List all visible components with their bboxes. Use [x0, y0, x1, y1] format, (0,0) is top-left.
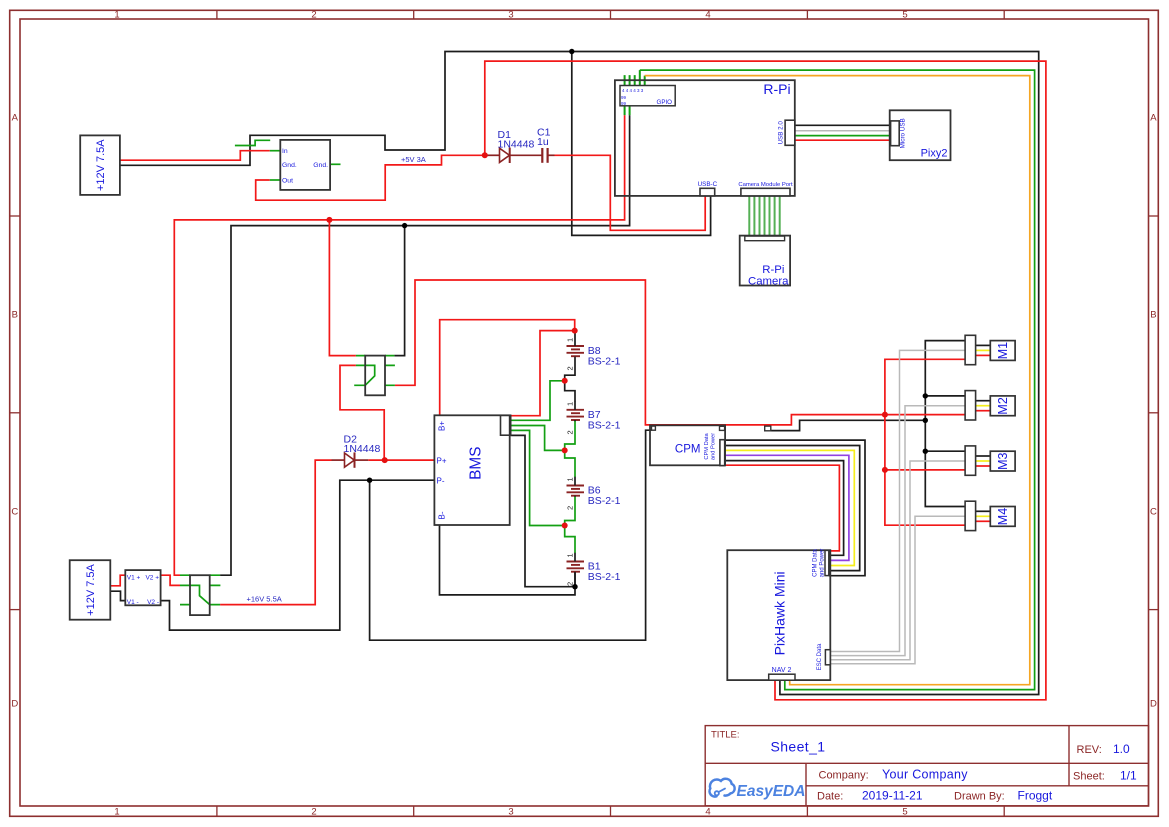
svg-text:2: 2 — [566, 430, 575, 434]
svg-text:1/1: 1/1 — [1120, 769, 1137, 783]
svg-text:2: 2 — [311, 10, 316, 21]
svg-text:Your Company: Your Company — [882, 767, 968, 781]
svg-text:and Power: and Power — [820, 549, 826, 578]
svg-text:1: 1 — [566, 553, 575, 557]
svg-text:1: 1 — [566, 338, 575, 342]
svg-text:REV:: REV: — [1077, 744, 1102, 756]
svg-text:1: 1 — [114, 10, 119, 21]
svg-text:PixHawk Mini: PixHawk Mini — [772, 571, 788, 655]
svg-text:Micro USB: Micro USB — [900, 118, 907, 148]
svg-text:BS-2-1: BS-2-1 — [588, 571, 621, 583]
svg-text:+12V 7.5A: +12V 7.5A — [85, 564, 97, 616]
svg-text:BMS: BMS — [468, 447, 485, 480]
svg-text:1N4448: 1N4448 — [344, 443, 381, 455]
svg-text:4: 4 — [705, 807, 710, 818]
svg-text:2019-11-21: 2019-11-21 — [862, 789, 923, 803]
svg-text:D: D — [11, 699, 18, 710]
svg-text:Company:: Company: — [819, 769, 869, 781]
svg-text:C: C — [1150, 507, 1157, 518]
svg-text:V2 +: V2 + — [145, 574, 159, 581]
svg-text:B: B — [1150, 310, 1156, 321]
svg-text:1.0: 1.0 — [1113, 742, 1130, 756]
svg-text:CPM Data: CPM Data — [813, 549, 819, 577]
svg-text:CPM Data: CPM Data — [704, 433, 710, 460]
svg-text:C: C — [11, 507, 18, 518]
svg-text:2: 2 — [311, 807, 316, 818]
svg-text:TITLE:: TITLE: — [711, 730, 740, 741]
svg-text:Gnd.: Gnd. — [313, 162, 328, 169]
svg-text:and Power: and Power — [711, 433, 717, 460]
svg-text:GPIO: GPIO — [657, 99, 673, 106]
svg-text:3: 3 — [508, 10, 513, 21]
svg-text:Drawn By:: Drawn By: — [954, 791, 1005, 803]
svg-text:2: 2 — [566, 506, 575, 510]
svg-text:B+: B+ — [437, 421, 446, 431]
svg-text:M2: M2 — [996, 397, 1010, 414]
svg-text:In: In — [282, 148, 288, 155]
svg-text:1: 1 — [566, 402, 575, 406]
svg-text:Sheet_1: Sheet_1 — [771, 739, 826, 755]
svg-text:BS-2-1: BS-2-1 — [588, 419, 621, 431]
svg-text:R-Pi: R-Pi — [762, 264, 784, 276]
svg-text:4 4 4 4 3 3: 4 4 4 4 3 3 — [622, 88, 644, 93]
svg-text:USB-C: USB-C — [698, 181, 718, 188]
svg-text:V1 +: V1 + — [127, 574, 141, 581]
svg-text:Pixy2: Pixy2 — [921, 148, 948, 160]
svg-text:5: 5 — [902, 807, 907, 818]
svg-text:Out: Out — [282, 178, 293, 185]
svg-text:B: B — [12, 310, 18, 321]
svg-text:Froggt: Froggt — [1018, 789, 1053, 803]
svg-text:4: 4 — [705, 10, 710, 21]
svg-text:Camera: Camera — [748, 276, 789, 288]
svg-text:99: 99 — [621, 101, 627, 106]
svg-text:5: 5 — [902, 10, 907, 21]
svg-text:Date:: Date: — [817, 791, 843, 803]
svg-text:P-: P- — [437, 476, 445, 485]
svg-text:+12V 7.5A: +12V 7.5A — [95, 139, 107, 191]
svg-text:R-Pi: R-Pi — [763, 81, 790, 97]
svg-text:2: 2 — [566, 582, 575, 586]
svg-text:1u: 1u — [537, 136, 549, 148]
svg-text:BS-2-1: BS-2-1 — [588, 495, 621, 507]
svg-text:USB 2.0: USB 2.0 — [778, 121, 785, 145]
svg-text:BS-2-1: BS-2-1 — [588, 356, 621, 368]
svg-text:M3: M3 — [996, 452, 1010, 469]
svg-text:A: A — [1150, 113, 1157, 124]
svg-text:P+: P+ — [437, 456, 447, 465]
svg-text:+5V 3A: +5V 3A — [401, 155, 426, 164]
svg-text:1: 1 — [114, 807, 119, 818]
svg-text:+16V 5.5A: +16V 5.5A — [247, 595, 282, 604]
svg-text:EasyEDA: EasyEDA — [737, 783, 806, 800]
svg-text:M1: M1 — [996, 342, 1010, 359]
svg-text:1: 1 — [566, 477, 575, 481]
svg-text:3: 3 — [508, 807, 513, 818]
svg-text:NAV 2: NAV 2 — [772, 667, 792, 674]
svg-text:Sheet:: Sheet: — [1073, 771, 1105, 783]
svg-text:V2 -: V2 - — [147, 599, 159, 606]
svg-text:1N4448: 1N4448 — [498, 138, 535, 150]
svg-text:A: A — [12, 113, 19, 124]
svg-text:CPM: CPM — [675, 443, 701, 455]
svg-text:Gnd.: Gnd. — [282, 162, 297, 169]
svg-text:99: 99 — [621, 95, 627, 100]
svg-text:ESC Data: ESC Data — [817, 643, 823, 670]
svg-text:B-: B- — [437, 511, 446, 519]
svg-text:2: 2 — [566, 366, 575, 370]
svg-text:D: D — [1150, 699, 1157, 710]
svg-text:M4: M4 — [996, 508, 1010, 525]
svg-text:V1 -: V1 - — [127, 599, 139, 606]
svg-text:Camera Module Port: Camera Module Port — [738, 182, 793, 188]
